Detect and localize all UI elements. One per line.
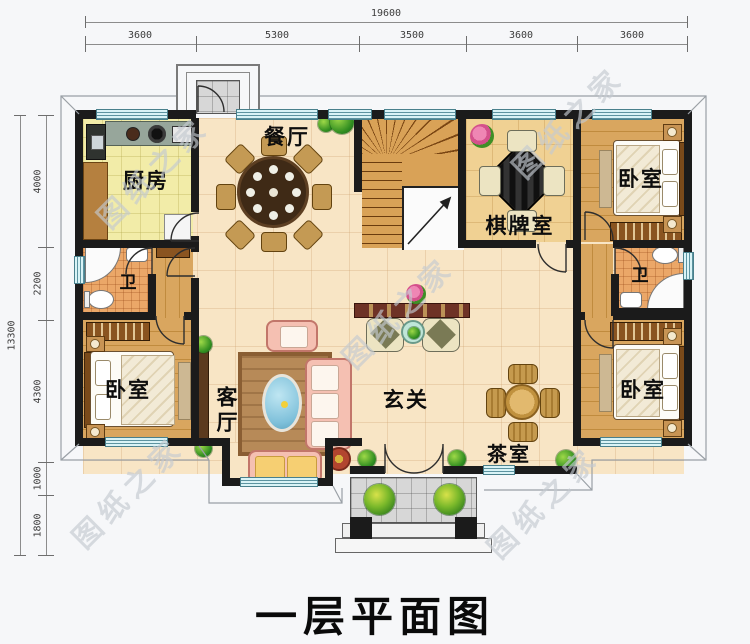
pot [126, 127, 140, 141]
foyer-armchair [366, 318, 404, 352]
table-decor [281, 401, 288, 408]
dim-left-seg-line [46, 115, 47, 555]
dim-tick [359, 36, 360, 52]
porch-step [335, 538, 492, 553]
dim-top-total: 19600 [356, 8, 416, 19]
wall [148, 274, 156, 316]
stair-winders [362, 118, 462, 154]
coffee-table [262, 374, 302, 432]
kitchen-counter [105, 121, 193, 146]
wall [613, 312, 692, 320]
cushion [311, 365, 339, 391]
chess-chair [479, 166, 501, 196]
window-strip [105, 437, 168, 447]
armchair [266, 320, 318, 352]
room-label-bath-right: 卫 [624, 261, 656, 286]
wall [222, 478, 240, 486]
wall [75, 284, 83, 446]
window-strip [592, 109, 652, 120]
wall [613, 240, 692, 248]
wall [515, 466, 577, 474]
wall [191, 118, 199, 212]
toilet [88, 290, 114, 309]
toilet-tank [84, 291, 90, 308]
foyer-table [401, 320, 425, 344]
wall [75, 240, 199, 248]
table-plates [269, 188, 278, 197]
room-label-foyer: 玄关 [364, 384, 448, 414]
corridor-right-floor [579, 244, 613, 318]
dim-top-seg-0: 3600 [110, 30, 170, 41]
wall [566, 240, 581, 248]
tea-chair [540, 388, 560, 418]
wall [184, 312, 199, 320]
nightstand [663, 420, 682, 437]
dim-tick [466, 36, 467, 52]
room-label-bath-left: 卫 [112, 268, 144, 293]
window-strip [328, 109, 372, 120]
dim-tick [577, 36, 578, 52]
kitchen-tall-unit [86, 124, 106, 160]
room-label-bedroom-bl: 卧室 [86, 374, 170, 404]
dining-chair [312, 184, 332, 210]
drawing-title: 一层平面图 [0, 583, 750, 644]
dining-chair [261, 232, 287, 252]
appliance-door [91, 135, 104, 150]
dining-table [237, 156, 309, 228]
flower-pot [470, 124, 494, 148]
foyer-console [354, 303, 470, 318]
nightstand [663, 216, 682, 233]
bedside-rug [178, 362, 191, 420]
dim-tick [38, 115, 54, 116]
staircase [362, 118, 462, 248]
foyer-armchair [422, 318, 460, 352]
dim-top-seg-2: 3500 [382, 30, 442, 41]
wall [354, 118, 362, 192]
kitchen-appliance [172, 126, 192, 143]
wall [75, 110, 83, 256]
wall [573, 312, 585, 320]
sink [620, 292, 642, 308]
wall [573, 244, 581, 320]
porch-column [455, 517, 477, 539]
cushion [370, 319, 400, 349]
wall [191, 320, 199, 442]
stove-burner [148, 125, 166, 143]
cushion [280, 326, 308, 348]
window-strip [683, 252, 694, 280]
porch-bush [364, 484, 395, 515]
wall [662, 438, 692, 446]
room-label-tea: 茶室 [467, 438, 551, 467]
nightstand [663, 124, 682, 141]
window-strip [74, 256, 85, 284]
dim-top-seg-line [85, 44, 688, 45]
dim-tick [38, 247, 54, 248]
back-porch-floor [196, 80, 240, 114]
dim-tick [687, 16, 688, 28]
cushion [426, 319, 456, 349]
window-strip [600, 437, 662, 447]
chess-chair [543, 166, 565, 196]
chess-chair [507, 130, 537, 152]
cushion [311, 393, 339, 419]
wall [443, 466, 483, 474]
flower-pot [406, 284, 426, 304]
tea-table [504, 384, 540, 420]
wall [350, 466, 385, 474]
tea-chair [486, 388, 506, 418]
porch-bush [434, 484, 465, 515]
room-label-bedroom-br: 卧室 [601, 374, 685, 404]
dim-left-total-line [20, 115, 21, 555]
dim-tick [14, 555, 26, 556]
window-strip [384, 109, 456, 120]
stair-flight [362, 154, 402, 248]
wall [75, 312, 156, 320]
sofa-three-seat [305, 358, 352, 450]
room-label-dining: 餐厅 [245, 121, 329, 151]
nightstand [86, 336, 105, 352]
dim-top-seg-3: 3600 [491, 30, 551, 41]
window-strip [240, 477, 318, 487]
wall [372, 110, 384, 119]
dim-top-total-line [85, 22, 688, 23]
wall [318, 478, 333, 486]
wall [318, 110, 328, 119]
nightstand [663, 328, 682, 345]
dim-left-seg-4: 1800 [33, 496, 44, 556]
dim-tick [85, 36, 86, 52]
dim-tick [14, 115, 26, 116]
wall [466, 240, 536, 248]
dim-tick [38, 320, 54, 321]
tea-chair [508, 364, 538, 384]
room-label-chess: 棋牌室 [457, 210, 583, 240]
window-strip [96, 109, 168, 120]
window-strip [236, 109, 318, 120]
sink [126, 247, 148, 262]
wall [75, 438, 105, 446]
dim-left-total: 13300 [7, 306, 18, 366]
dim-left-seg-1: 2200 [33, 254, 44, 314]
room-label-bedroom-tr: 卧室 [599, 163, 683, 193]
dim-left-seg-0: 4000 [33, 152, 44, 212]
wall [573, 320, 581, 442]
dim-top-seg-4: 3600 [602, 30, 662, 41]
plant [408, 327, 420, 339]
wall [684, 110, 692, 252]
dim-top-seg-1: 5300 [247, 30, 307, 41]
dim-tick [85, 16, 86, 28]
dining-chair [216, 184, 236, 210]
stair-void [402, 186, 464, 250]
wall [684, 280, 692, 446]
room-label-kitchen: 厨房 [104, 165, 188, 195]
fridge [164, 214, 191, 240]
floor-plan-canvas: 19600 3600 5300 3500 3600 3600 13300 400… [0, 0, 750, 642]
dim-left-seg-2: 4300 [33, 362, 44, 422]
porch-column [350, 517, 372, 539]
window-strip [492, 109, 556, 120]
dim-tick [196, 36, 197, 52]
room-label-living: 客厅 [211, 376, 241, 446]
dim-tick [687, 36, 688, 52]
